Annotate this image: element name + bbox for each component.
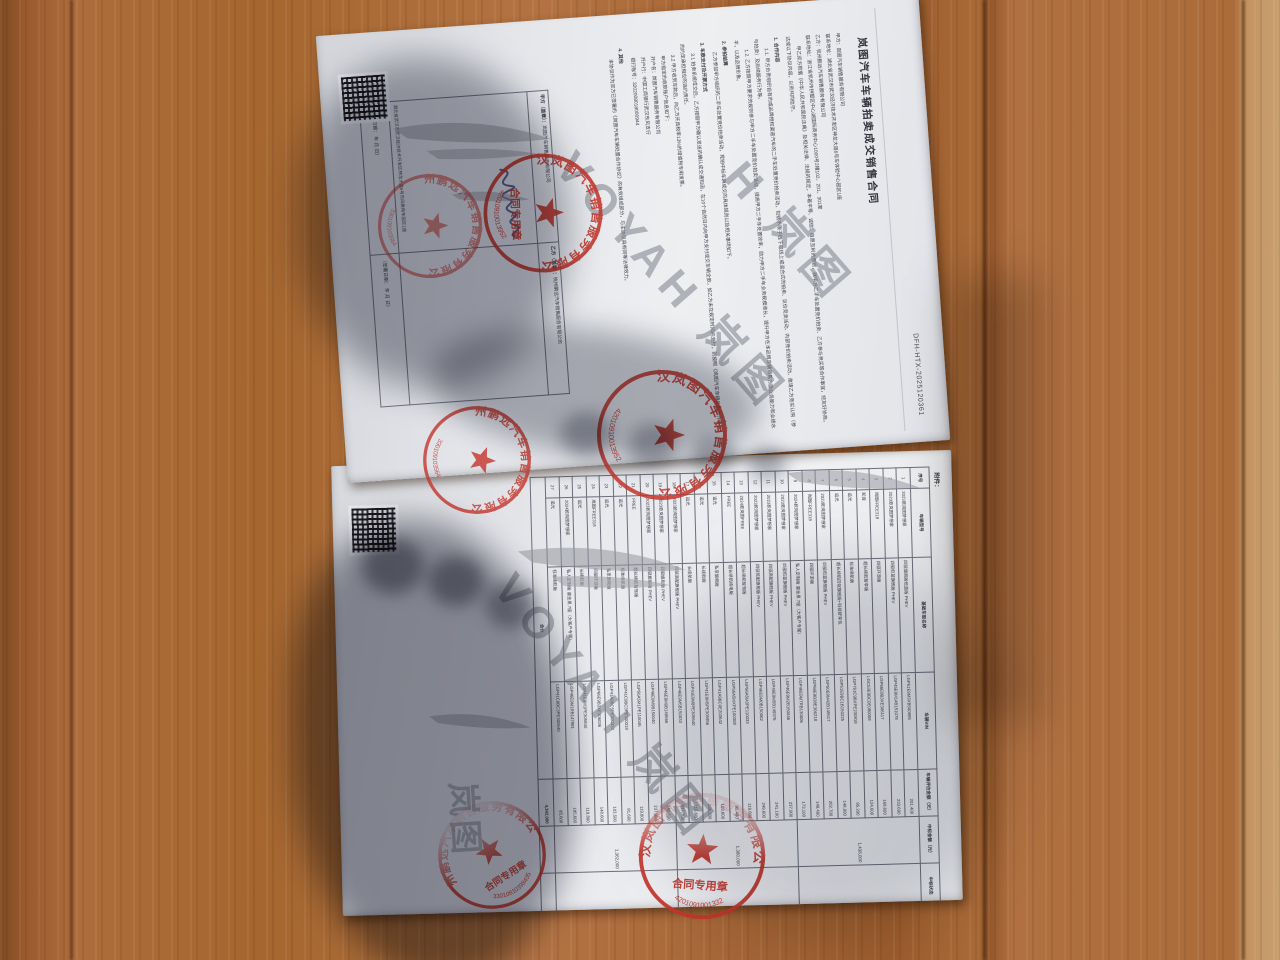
cell-vin: LGP46E9M7RB130006 bbox=[794, 675, 810, 772]
cell-model: 追光 bbox=[681, 494, 696, 563]
cell-model: 追光 bbox=[573, 497, 588, 566]
cell-model: 追光 bbox=[695, 494, 710, 563]
cell-bid-amount: 1,438,000 bbox=[798, 816, 921, 866]
total-amount: 4,342,000 bbox=[538, 779, 554, 826]
header-rule bbox=[874, 8, 905, 431]
cell-model: 2023款岚图梦想家 bbox=[641, 495, 656, 564]
cell-vin: LGP46E9M0B150062 bbox=[753, 676, 769, 773]
column-header: 车辆评估金额（元） bbox=[918, 769, 938, 816]
signature-table: 甲方（盖章）：岚图汽车销售服务有限公司乙方（盖章）：杭州鹏远汽车销售服务有限公司… bbox=[359, 90, 570, 408]
cell-amount: 247,700 bbox=[675, 775, 690, 822]
cell-vin: LGP66E9B3XE306036 bbox=[591, 681, 607, 778]
cell-vin: LGP41A9BC5PE300333 bbox=[605, 680, 621, 777]
cell-amount: 148,000 bbox=[837, 771, 852, 818]
cell-index: 18 bbox=[667, 474, 681, 495]
cell-model: 岚图FREE318 bbox=[587, 497, 602, 566]
cell-index: 26 bbox=[559, 476, 573, 497]
cell-index: 2 bbox=[883, 468, 897, 489]
cell-amount: 249,600 bbox=[756, 773, 771, 820]
cell-vin: LGP46E9M1RB147981 bbox=[564, 681, 580, 778]
wood-plank-seam bbox=[70, 0, 73, 960]
cell-vin: LGC53E9BC0E080058 bbox=[861, 674, 877, 771]
cell-index: 8 bbox=[802, 470, 816, 491]
cell-model: 2023款岚图梦想家 bbox=[884, 489, 899, 558]
cell-vin: LGP41E9M5PE305956 bbox=[699, 678, 715, 775]
cell-index: 9 bbox=[788, 470, 802, 491]
cell-bid-amount: 1,362,000 bbox=[555, 823, 678, 873]
cell-amount: 95,200 bbox=[850, 771, 865, 818]
cell-index: 4 bbox=[856, 469, 870, 490]
cell-model: FREE bbox=[627, 496, 642, 565]
cell-vin: LGP41A9BC0E203642 bbox=[713, 677, 729, 774]
cell-model: 追光 bbox=[600, 496, 615, 565]
contract-page-2: 附件： 序号车辆型号基础车型名称车辆VIN车辆评估金额（元）中标金额（元）中标状… bbox=[331, 450, 963, 916]
qr-code-page-2 bbox=[348, 504, 399, 555]
cell-amount: 168,600 bbox=[877, 770, 892, 817]
vehicle-auction-table: 序号车辆型号基础车型名称车辆VIN车辆评估金额（元）中标金额（元）中标状态120… bbox=[530, 467, 941, 917]
total-bid-empty bbox=[540, 826, 556, 873]
column-header: 车辆型号 bbox=[910, 488, 931, 557]
cell-model: 知音 bbox=[857, 490, 872, 559]
cell-vin: LGP41E9M1PE305840 bbox=[578, 681, 594, 778]
cell-bid-status bbox=[799, 863, 922, 911]
cell-amount: 201,400 bbox=[904, 769, 919, 816]
cell-index: 13 bbox=[735, 472, 749, 493]
cell-amount: 202,700 bbox=[823, 772, 838, 819]
total-status-empty bbox=[541, 873, 557, 916]
cell-amount: 241,100 bbox=[769, 773, 784, 820]
photo-of-contract-on-desk: DFH-HTX-2025120361 岚图汽车车辆拍卖成交销售合同 甲方：岚图汽… bbox=[0, 0, 1280, 960]
cell-model: 2024款岚图FREE bbox=[735, 493, 750, 562]
cell-index: 15 bbox=[708, 472, 722, 493]
soft-shadow bbox=[948, 276, 1040, 722]
cell-model: 2023款岚图梦想家 bbox=[762, 492, 777, 561]
cell-model: 2023款岚图梦想家 bbox=[749, 492, 764, 561]
contract-body-text: 甲方：岚图汽车销售服务有限公司联系地址：湖北省武汉市武汉经济技术开发区神龙大道6… bbox=[603, 33, 868, 439]
cell-index: 24 bbox=[586, 476, 600, 497]
cell-model: 2023款岚图梦想家 bbox=[668, 495, 683, 564]
cell-index: 6 bbox=[829, 469, 843, 490]
cell-amount: 246,600 bbox=[661, 776, 676, 823]
column-header: 中标金额（元） bbox=[919, 816, 939, 863]
cell-vin: LGP66E9B3XE306117 bbox=[875, 673, 891, 770]
cell-model: 追光 bbox=[830, 490, 845, 559]
contract-page-2-content: 附件： 序号车辆型号基础车型名称车辆VIN车辆评估金额（元）中标金额（元）中标状… bbox=[331, 450, 963, 916]
cell-amount: 103,600 bbox=[715, 774, 730, 821]
qr-code-page-1 bbox=[338, 71, 391, 124]
cell-vin: LGP56A5M3PE110033 bbox=[740, 677, 756, 774]
cell-bid-status: 20 bbox=[556, 870, 679, 916]
cell-bid-status: 19 bbox=[677, 867, 800, 915]
cell-amount: 136,200 bbox=[702, 775, 717, 822]
cell-index: 3 bbox=[869, 468, 883, 489]
cell-amount: 95,400 bbox=[729, 774, 744, 821]
cell-index: 23 bbox=[600, 475, 614, 496]
cell-amount: 237,900 bbox=[783, 773, 798, 820]
cell-vin: LGP46E9M5B150033 bbox=[672, 678, 688, 775]
cell-vin: LGP46E9M5B149376 bbox=[767, 676, 783, 773]
cell-amount: 119,800 bbox=[580, 778, 595, 825]
cell-index: 21 bbox=[627, 475, 641, 496]
cell-amount: 115,600 bbox=[688, 775, 703, 822]
cell-model: 2023款岚图梦想家 bbox=[816, 491, 831, 560]
party-b-stamp-area bbox=[399, 243, 549, 405]
cell-vin: LGP56A5M1PE110046 bbox=[632, 680, 648, 777]
cell-vin: LGP51E9M3XB500985 bbox=[902, 672, 918, 769]
cell-index: 7 bbox=[815, 470, 829, 491]
column-header: 车辆VIN bbox=[915, 672, 937, 769]
cell-index: 19 bbox=[654, 474, 668, 495]
cell-model: 追光 bbox=[614, 496, 629, 565]
cell-vin: LGP46E9M0B149566 bbox=[659, 679, 675, 776]
cell-index: 22 bbox=[613, 475, 627, 496]
column-header: 基础车型名称 bbox=[912, 557, 934, 672]
cell-amount: 148,600 bbox=[594, 778, 609, 825]
cell-amount: 124,600 bbox=[864, 770, 879, 817]
cell-model: 追光 bbox=[708, 493, 723, 562]
cell-model: 2024款岚图梦想家 bbox=[789, 491, 804, 560]
contract-number: DFH-HTX-2025120361 bbox=[912, 333, 925, 416]
cell-index: 11 bbox=[762, 471, 776, 492]
cell-index: 17 bbox=[681, 473, 695, 494]
cell-index: 10 bbox=[775, 471, 789, 492]
cell-amount: 103,500 bbox=[607, 777, 622, 824]
cell-vin: LGP51E9BC1B150225 bbox=[834, 674, 850, 771]
cell-model: 2023款岚图梦想家 bbox=[776, 492, 791, 561]
column-header: 中标状态 bbox=[920, 863, 940, 908]
cell-index: 1 bbox=[896, 468, 910, 489]
cell-vin: LGP56A5MXPE100308 bbox=[726, 677, 742, 774]
cell-amount: 185,600 bbox=[567, 778, 582, 825]
cell-amount: 119,800 bbox=[742, 774, 757, 821]
cell-amount: 81,600 bbox=[621, 777, 636, 824]
wood-plank-seam bbox=[983, 0, 986, 960]
cell-model: 2023款岚图梦想家 bbox=[654, 495, 669, 564]
cell-vin: LGP46E9M2B150046 bbox=[780, 676, 796, 773]
cell-amount: 149,400 bbox=[810, 772, 825, 819]
cell-model: 2023款岚图梦想家 bbox=[897, 489, 912, 558]
cell-model: 追光 bbox=[546, 498, 561, 567]
cell-model: FREE bbox=[722, 493, 737, 562]
cell-model: 2024款岚图梦想家 bbox=[560, 497, 575, 566]
contract-page-1-content: DFH-HTX-2025120361 岚图汽车车辆拍卖成交销售合同 甲方：岚图汽… bbox=[316, 0, 950, 483]
cell-bid-amount: 1,380,000 bbox=[676, 820, 799, 870]
cell-vin: LGP46E9M9B150040 bbox=[645, 679, 661, 776]
column-header: 序号 bbox=[910, 467, 930, 488]
cell-vin: LGP45E9M14B151078 bbox=[888, 673, 904, 770]
cell-model: 岚图FREE318 bbox=[870, 489, 885, 558]
cell-amount: 173,100 bbox=[796, 772, 811, 819]
cell-vin: LGP41C9BC3PE300540 bbox=[551, 682, 567, 779]
cell-amount: 233,600 bbox=[891, 770, 906, 817]
cell-index: 5 bbox=[842, 469, 856, 490]
cell-index: 20 bbox=[640, 474, 654, 495]
cell-index: 27 bbox=[546, 477, 560, 498]
cell-model: 追光 bbox=[843, 490, 858, 559]
cell-index: 16 bbox=[694, 473, 708, 494]
cell-amount: 237,900 bbox=[648, 776, 663, 823]
cell-vin: LGP761C9BXPE230918 bbox=[848, 674, 864, 771]
cell-vin: LGP66E9B38E306218 bbox=[807, 675, 823, 772]
cell-amount: 95,600 bbox=[553, 779, 568, 826]
cell-index: 25 bbox=[573, 476, 587, 497]
cell-model: 岚图FREE318 bbox=[803, 491, 818, 560]
contract-page-1: DFH-HTX-2025120361 岚图汽车车辆拍卖成交销售合同 甲方：岚图汽… bbox=[316, 0, 950, 483]
cell-index: 12 bbox=[748, 471, 762, 492]
cell-vin: LGP41E9M8PE305640 bbox=[686, 678, 702, 775]
cell-index: 14 bbox=[721, 472, 735, 493]
cell-vin: LGP41C9BC3PE300318 bbox=[618, 680, 634, 777]
wood-plank-seam bbox=[1242, 0, 1245, 960]
cell-vin: LGP50E9M42B145517 bbox=[821, 675, 837, 772]
attachment-label: 附件： bbox=[933, 472, 942, 490]
cell-amount: 119,800 bbox=[634, 777, 649, 824]
